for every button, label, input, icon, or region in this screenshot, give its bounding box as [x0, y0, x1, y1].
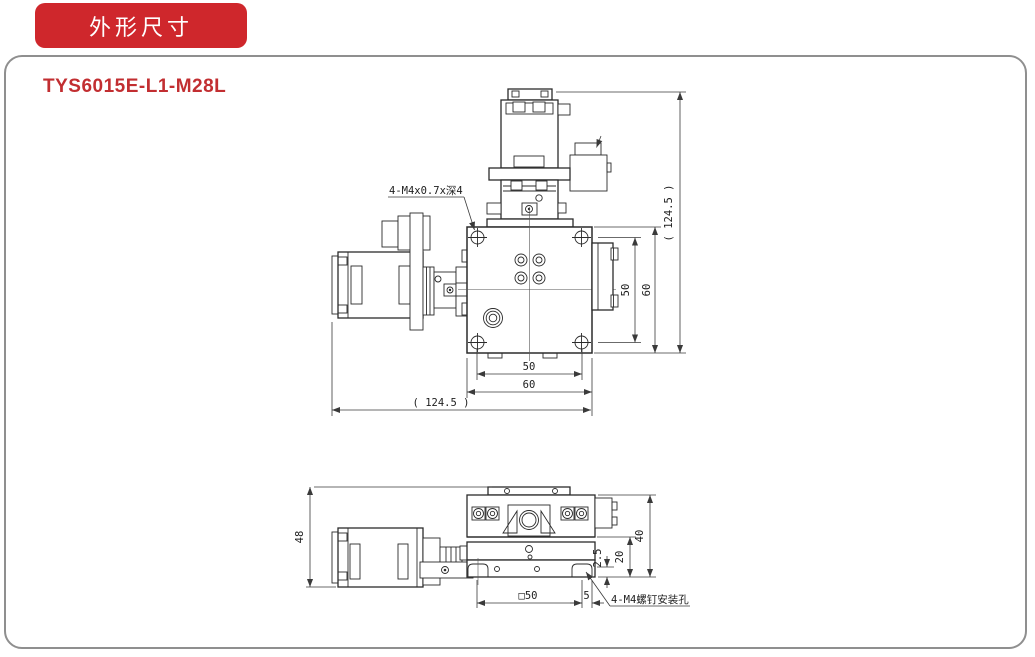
dim-side-40: 40 — [634, 530, 646, 543]
top-view-side-tab — [592, 243, 618, 310]
top-view-z-motor — [487, 89, 611, 227]
dim-top-bottom-overall: ( 124.5 ) — [413, 397, 470, 409]
side-view-stage — [467, 487, 617, 585]
dim-top-bottom-50: 50 — [523, 361, 536, 373]
side-view: 4-M4螺钉安装孔 48 40 20 2.5 — [294, 487, 690, 608]
thread-note-label: 4-M4x0.7x深4 — [389, 185, 463, 197]
dim-top-right-50: 50 — [620, 284, 632, 297]
dim-top-right-60: 60 — [641, 284, 653, 297]
dimension-drawing: 4-M4x0.7x深4 50 60 ( 124.5 ) 50 — [0, 0, 1035, 657]
dim-side-48: 48 — [294, 531, 306, 544]
top-view: 4-M4x0.7x深4 50 60 ( 124.5 ) 50 — [332, 89, 686, 416]
dim-side-5: 5 — [583, 590, 589, 602]
side-view-coupling — [420, 538, 473, 585]
dim-side-20: 20 — [614, 551, 626, 564]
dim-side-2-5: 2.5 — [592, 549, 604, 568]
dim-top-right-overall: ( 124.5 ) — [663, 185, 675, 242]
dim-top-bottom-60: 60 — [523, 379, 536, 391]
top-view-x-motor — [332, 213, 467, 330]
side-view-motor — [332, 528, 423, 587]
mount-note-label: 4-M4螺钉安装孔 — [611, 593, 689, 606]
dim-side-square50: □50 — [519, 590, 538, 602]
